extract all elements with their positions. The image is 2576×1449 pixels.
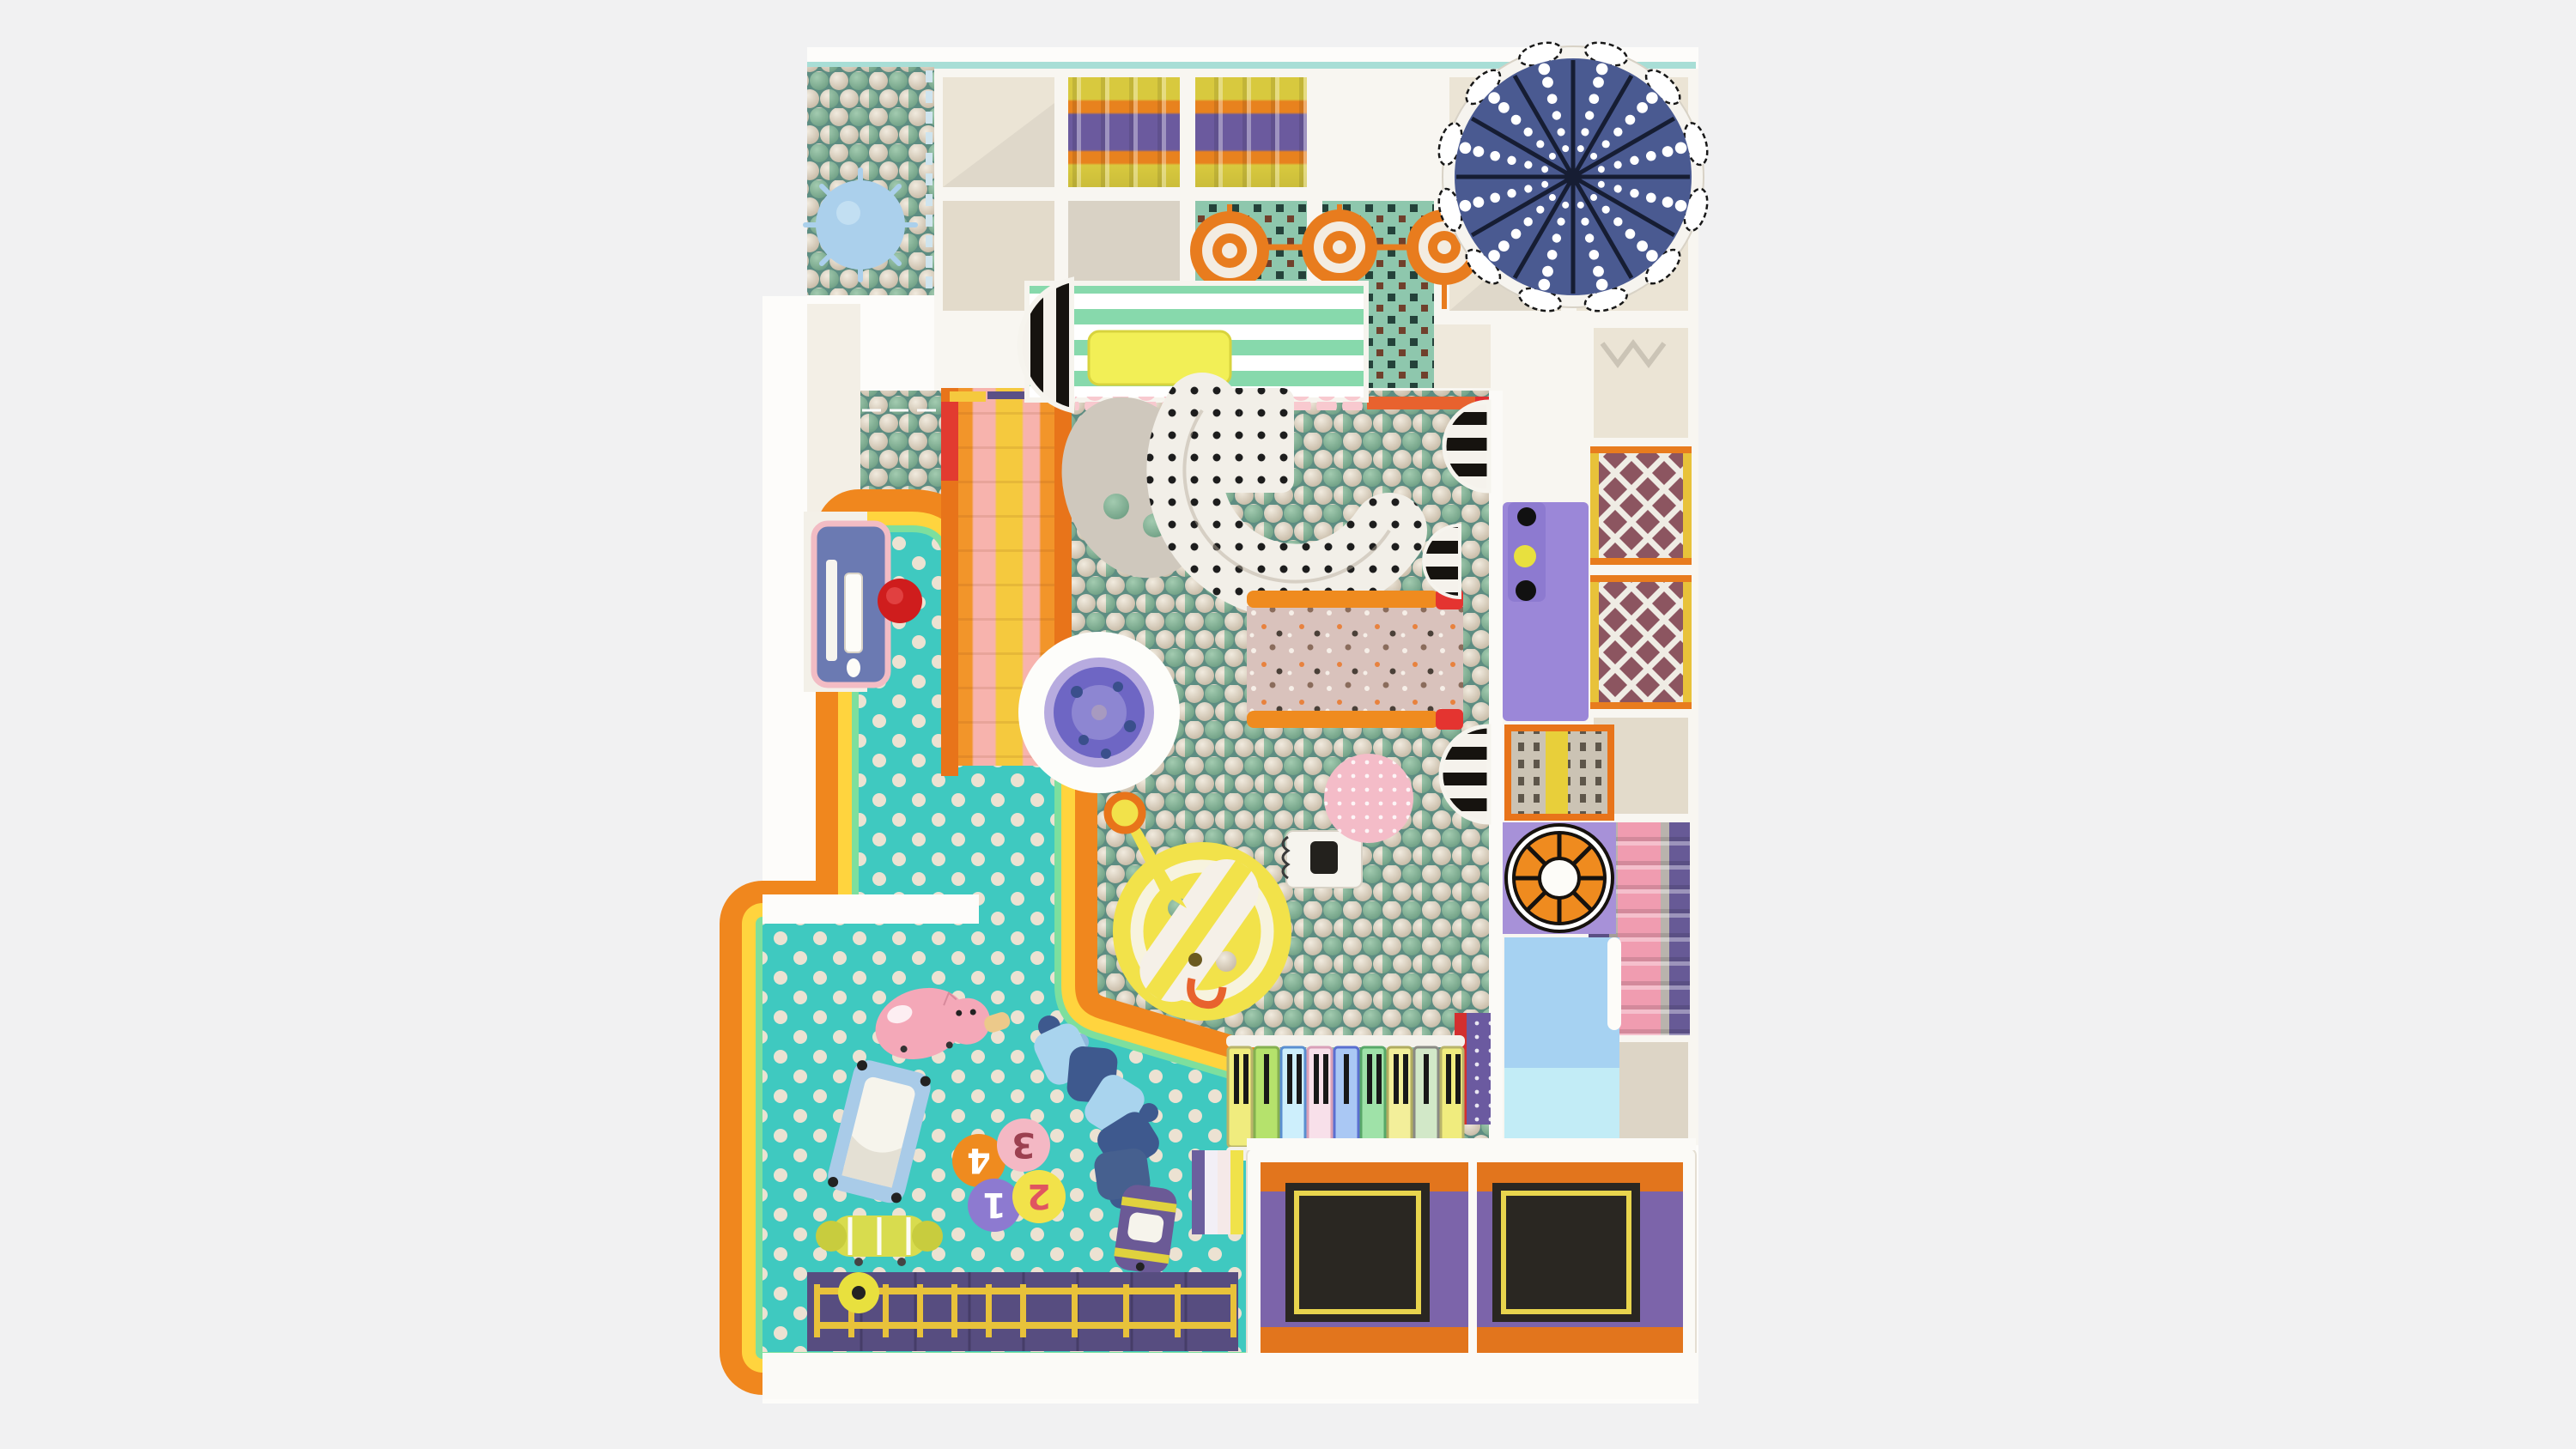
svg-text:2: 2 [1027, 1176, 1051, 1216]
purple-wall-dots [1467, 1013, 1491, 1125]
trampoline-divider [1468, 1157, 1477, 1365]
spiky-ball [805, 170, 915, 280]
trampoline-mat-right [1492, 1183, 1640, 1322]
svg-text:3: 3 [1012, 1125, 1036, 1164]
playground-floorplan: 4 3 1 2 [0, 0, 2576, 1449]
trampoline-court [1247, 1149, 1696, 1373]
target-1 [1190, 211, 1269, 290]
monitor [826, 560, 837, 661]
piano-black-keys [1234, 1054, 1461, 1104]
stool-2: 2 [1012, 1170, 1066, 1223]
pit-top-rail [1367, 397, 1477, 409]
bottom-wall [807, 1272, 1238, 1351]
svg-text:1: 1 [982, 1185, 1006, 1224]
stool-3: 3 [997, 1119, 1050, 1172]
mouse [847, 658, 860, 677]
walkway-gap [1247, 1138, 1696, 1150]
climbing-panel [1508, 728, 1611, 817]
terrazzo-slide [1247, 589, 1463, 730]
trampoline-mat-left [1285, 1183, 1430, 1322]
periscope [1108, 796, 1142, 830]
umbrella-canopy [1435, 39, 1711, 315]
bubble-pool [1018, 632, 1180, 793]
target-2 [1302, 209, 1377, 285]
net-climb-panels [1590, 446, 1692, 709]
net-panel-1 [1590, 446, 1692, 565]
white-notch [762, 894, 979, 924]
ball-blower [1283, 831, 1362, 888]
net-panel-2 [1590, 575, 1692, 709]
spinner-wheel [1503, 822, 1616, 934]
pink-dotted-ball [1324, 754, 1413, 843]
bottom-walkway [762, 1353, 1698, 1399]
purple-platform [1503, 502, 1589, 721]
corner-ball-pit [805, 67, 934, 304]
slide-runout [1504, 937, 1621, 1143]
svg-text:4: 4 [967, 1140, 991, 1179]
stool-1: 1 [968, 1179, 1021, 1232]
striped-mat [1192, 1150, 1243, 1234]
keyboard [845, 573, 862, 652]
